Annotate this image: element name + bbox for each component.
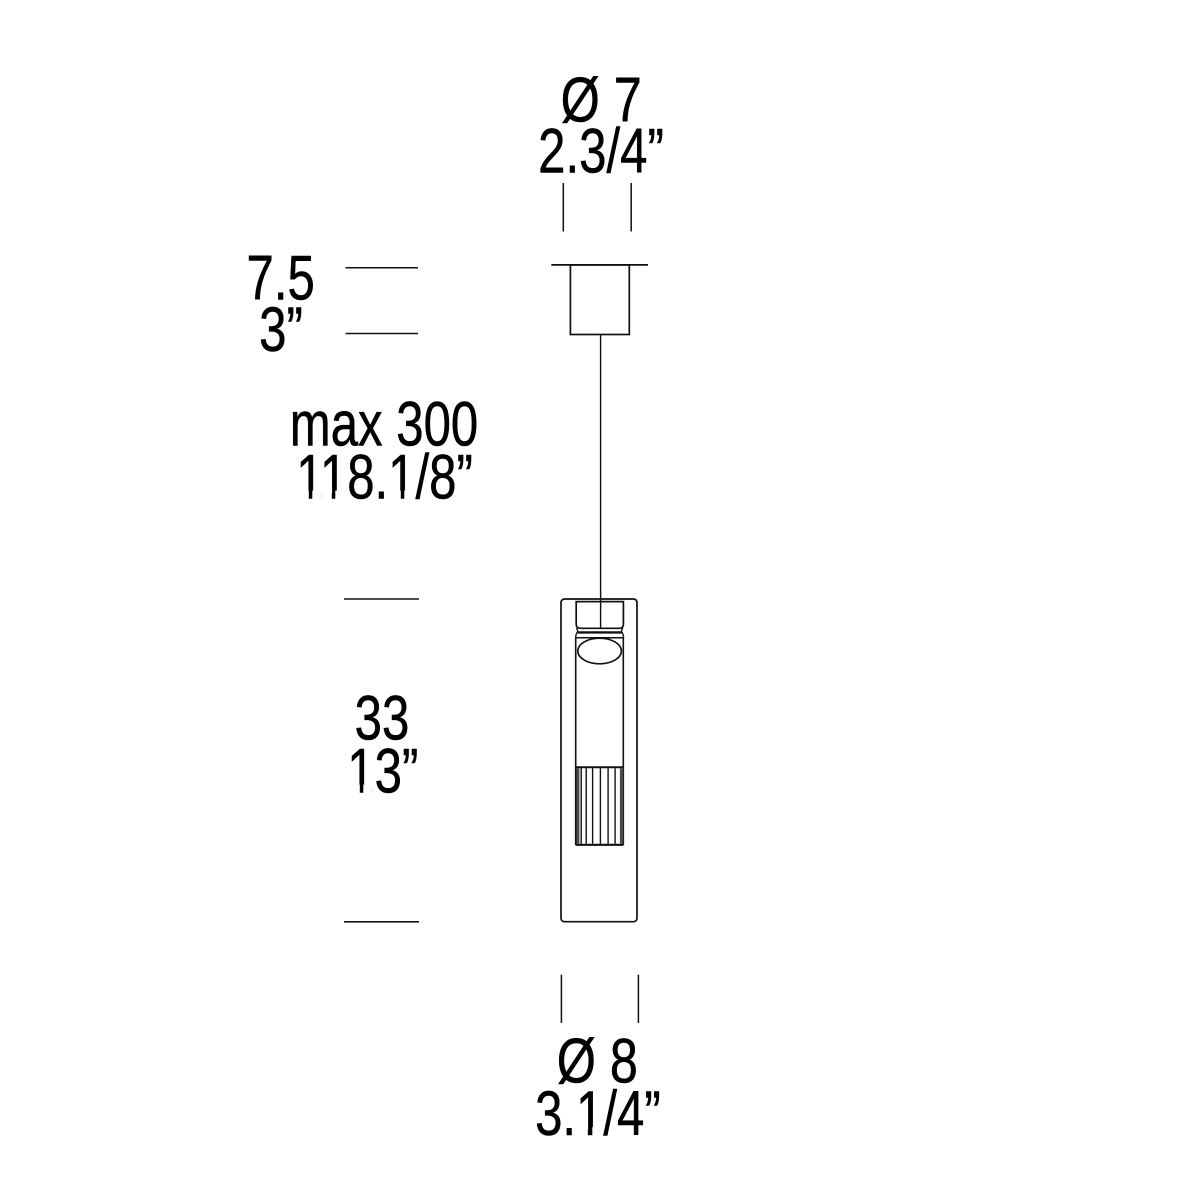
svg-text:13”: 13” — [347, 736, 418, 806]
svg-text:3”: 3” — [259, 294, 303, 364]
svg-text:118.1/8”: 118.1/8” — [296, 442, 473, 512]
svg-text:2.3/4”: 2.3/4” — [538, 116, 664, 186]
svg-text:3.1/4”: 3.1/4” — [535, 1078, 661, 1148]
